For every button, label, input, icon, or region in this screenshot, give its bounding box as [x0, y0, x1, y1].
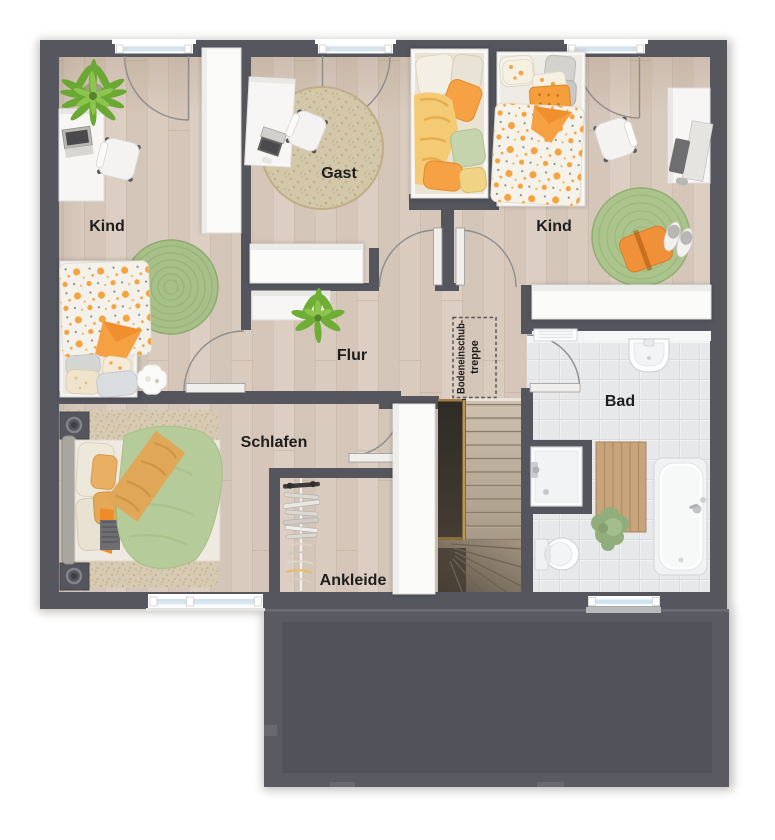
svg-text:Flur: Flur [337, 347, 367, 364]
svg-text:Kind: Kind [89, 218, 125, 235]
svg-text:treppe: treppe [469, 340, 481, 374]
svg-text:Ankleide: Ankleide [320, 572, 387, 589]
svg-text:Gast: Gast [321, 165, 357, 182]
svg-text:Kind: Kind [536, 218, 572, 235]
svg-text:Schlafen: Schlafen [241, 434, 308, 451]
svg-text:Bad: Bad [605, 393, 635, 410]
svg-text:Bodeneinschub-: Bodeneinschub- [456, 320, 468, 394]
